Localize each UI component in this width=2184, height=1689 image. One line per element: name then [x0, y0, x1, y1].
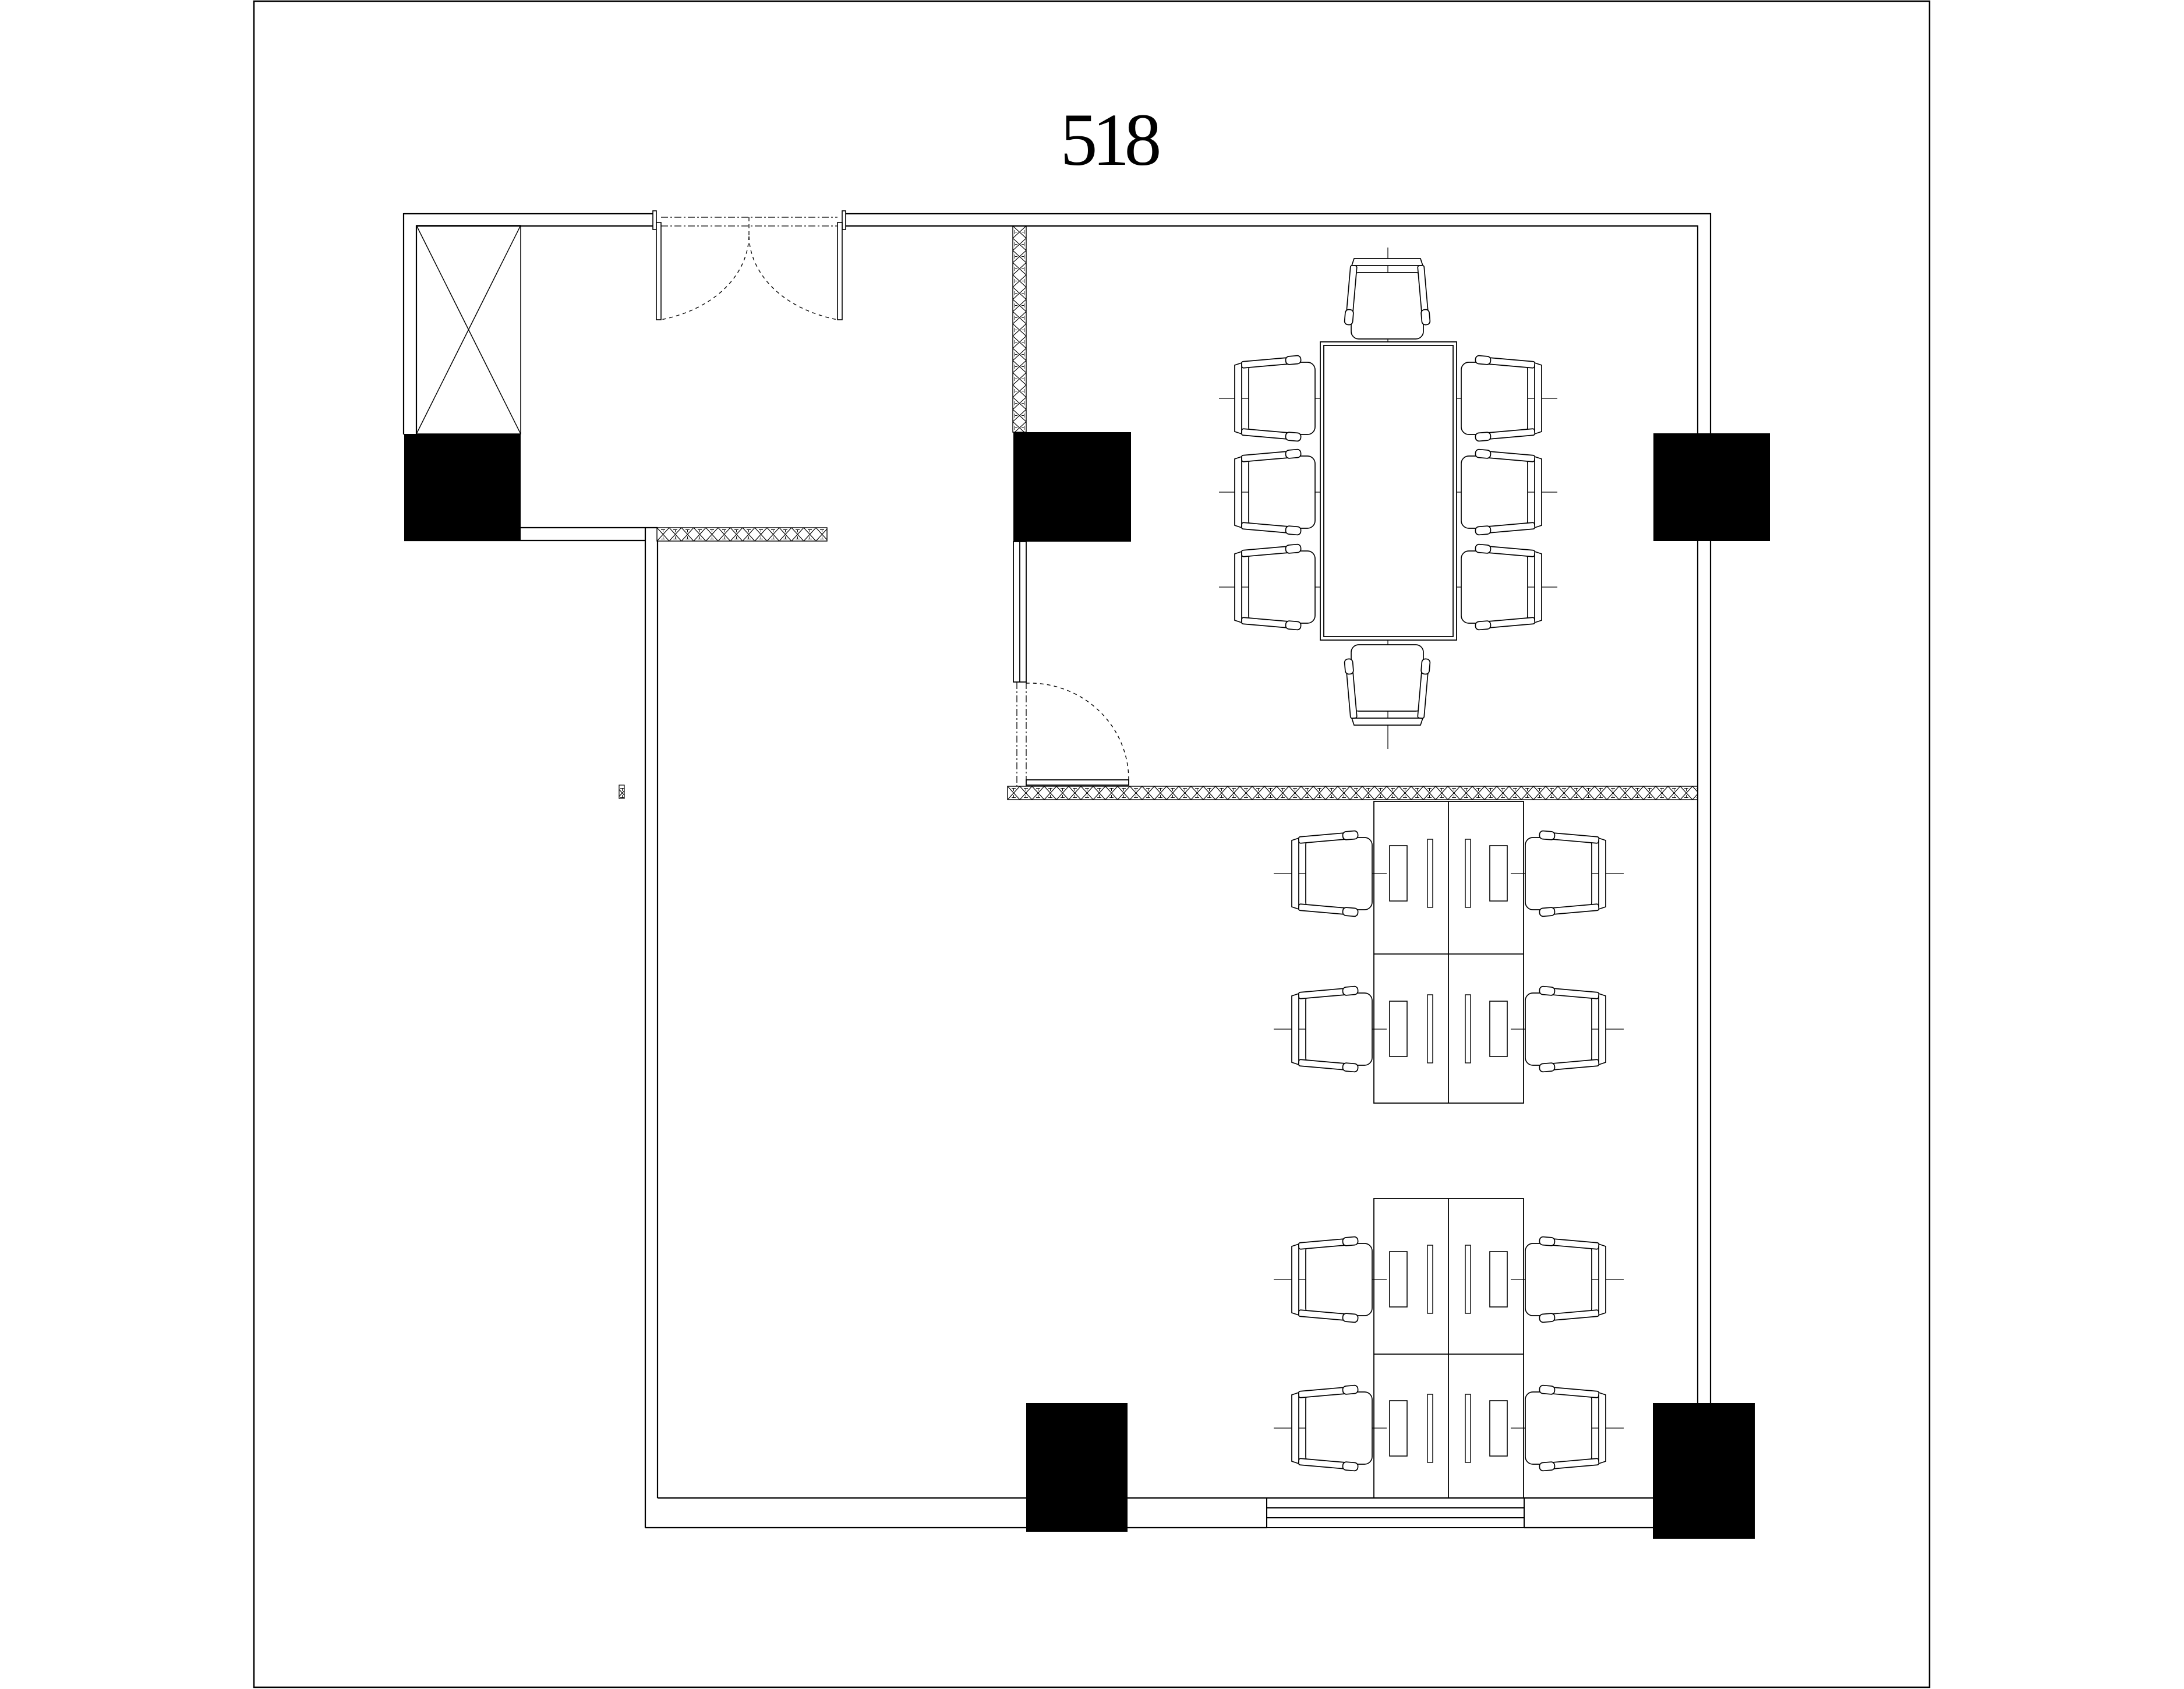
svg-text:518: 518	[1061, 98, 1160, 181]
